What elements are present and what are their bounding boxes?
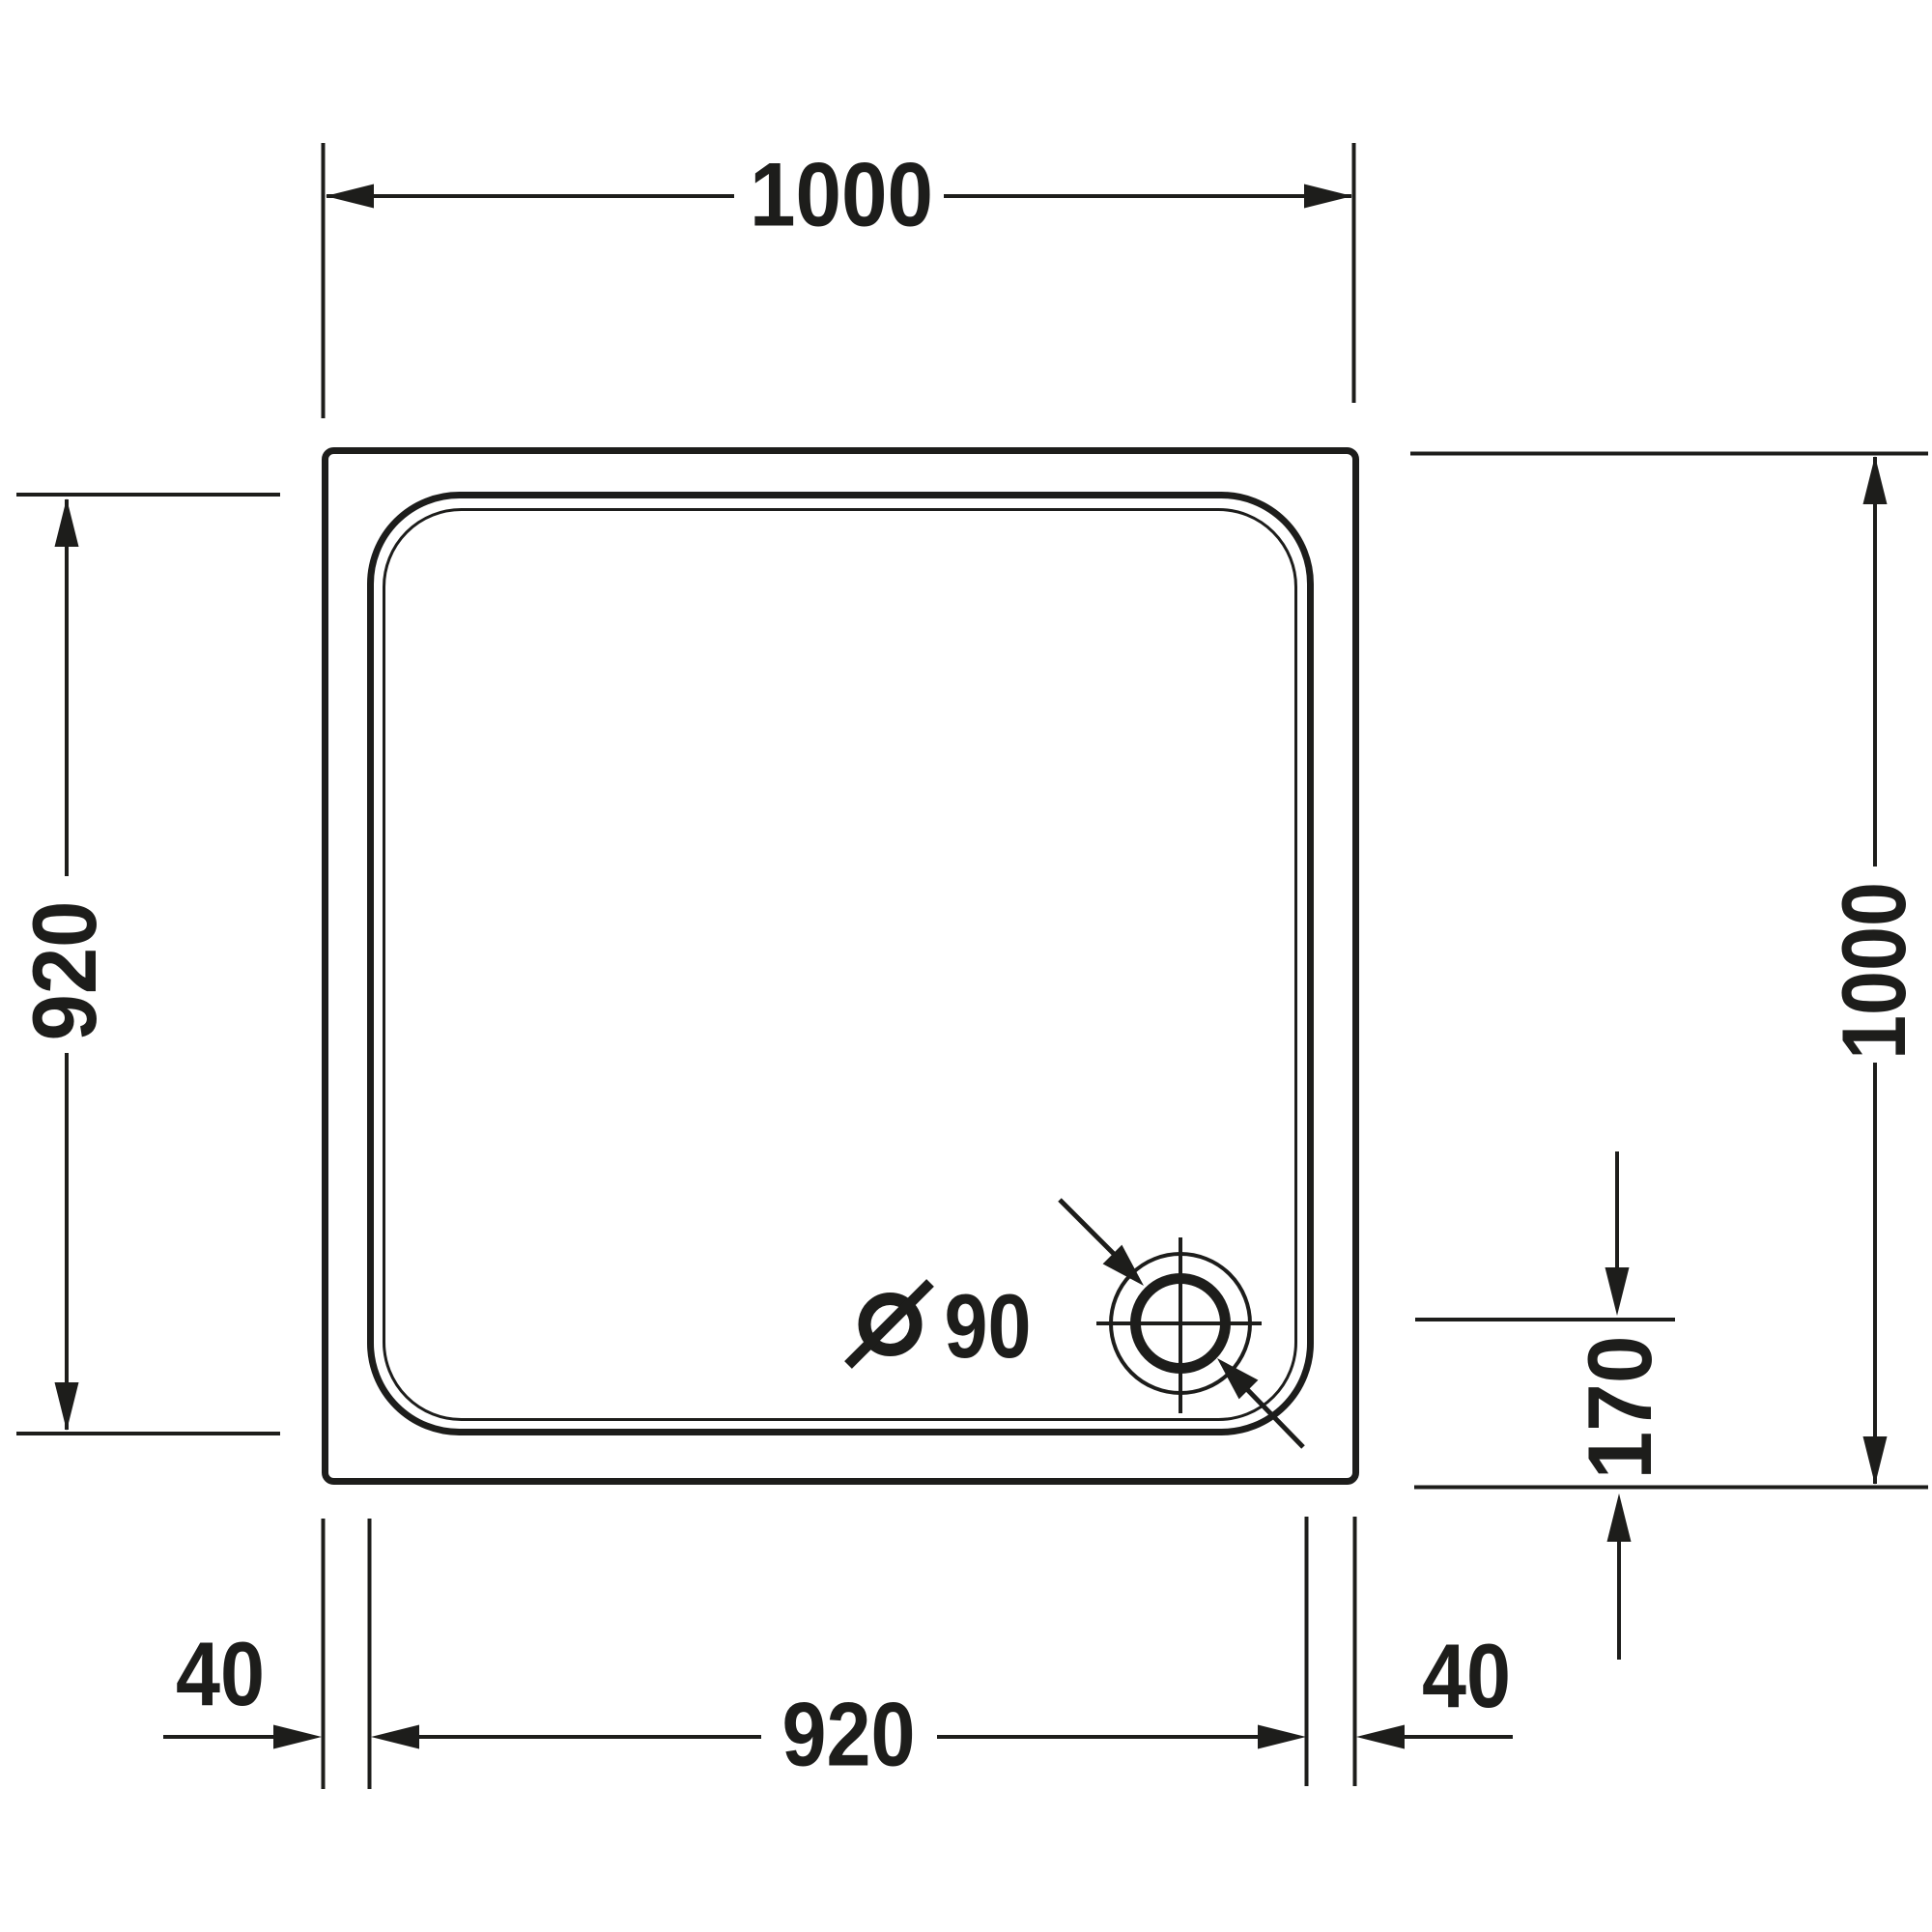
svg-text:920: 920 [782, 1684, 916, 1785]
svg-text:90: 90 [945, 1275, 1032, 1377]
svg-text:40: 40 [176, 1623, 265, 1724]
svg-text:920: 920 [14, 901, 115, 1041]
svg-text:170: 170 [1569, 1336, 1670, 1480]
svg-text:1000: 1000 [1823, 882, 1924, 1060]
svg-text:1000: 1000 [750, 144, 933, 245]
svg-text:40: 40 [1422, 1625, 1511, 1726]
